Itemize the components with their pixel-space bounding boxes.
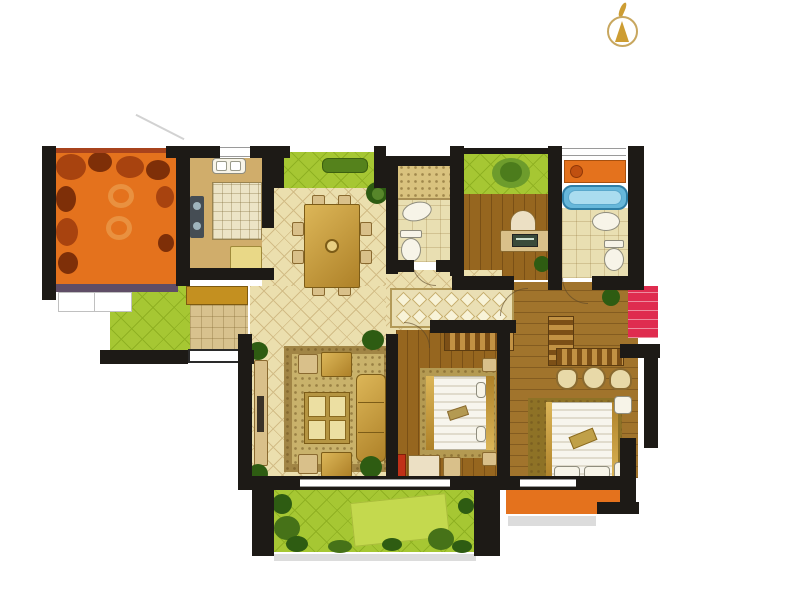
dining-chair — [292, 250, 304, 264]
terrace-railing-top — [56, 148, 168, 153]
wall-segment — [386, 334, 398, 478]
coffee-table-tray — [329, 396, 346, 417]
coffee-table-tray — [308, 420, 326, 440]
wall-segment — [597, 502, 639, 514]
ac-platform — [58, 292, 132, 312]
study-garden-bush — [500, 162, 522, 182]
terrace-railing-bottom — [56, 284, 178, 292]
terrace-foliage — [156, 186, 174, 208]
dining-plant — [372, 188, 384, 200]
terrace-foliage — [56, 218, 78, 246]
master-wardrobe — [556, 348, 624, 366]
side-table — [298, 354, 318, 374]
master-pouf — [556, 368, 578, 390]
sofa-seat-line — [358, 402, 384, 403]
dining-chair — [292, 222, 304, 236]
balcony-foliage — [286, 536, 308, 552]
wall-segment — [450, 146, 464, 276]
ensuite-sink — [592, 212, 620, 231]
armchair — [321, 452, 352, 477]
balcony-foliage — [328, 540, 352, 553]
wall-segment — [240, 350, 254, 364]
terrace-chair — [108, 184, 134, 208]
compass-flame-icon — [617, 2, 628, 18]
runner-diamond — [444, 292, 460, 308]
wall-segment — [250, 146, 290, 158]
wall-segment — [458, 148, 554, 154]
floor-plan-canvas — [0, 0, 800, 611]
window — [520, 479, 576, 487]
shoe-cabinet — [186, 286, 248, 305]
balcony-foliage — [428, 528, 454, 550]
sketch-line — [135, 114, 184, 140]
ac-platform-line — [94, 292, 95, 312]
dining-chair — [360, 250, 372, 264]
terrace-foliage — [56, 186, 76, 212]
wall-segment — [42, 146, 56, 300]
red-bay-window — [628, 286, 658, 338]
bedroom-bed-footboard — [426, 376, 434, 450]
terrace-foliage — [58, 252, 78, 274]
terrace-foliage — [158, 234, 174, 252]
terrace-foliage — [88, 152, 112, 172]
runner-diamond — [476, 292, 492, 308]
window — [300, 479, 450, 487]
nightstand — [482, 452, 497, 466]
bedroom-headboard — [486, 376, 494, 450]
wall-segment — [644, 344, 658, 448]
shower-area — [398, 164, 450, 200]
runner-diamond — [412, 292, 428, 308]
dining-chair — [360, 222, 372, 236]
master-bed-frame — [546, 402, 552, 482]
master-nightstand — [614, 396, 632, 414]
coffee-table-tray — [308, 396, 326, 417]
garden-bench — [322, 158, 368, 173]
wall-segment — [252, 486, 274, 556]
entry-threshold — [188, 349, 240, 363]
wall-segment — [474, 486, 500, 556]
bedroom-pillow — [476, 382, 486, 398]
wall-segment — [100, 350, 176, 364]
toilet-tank — [400, 230, 422, 238]
dining-table-center — [325, 239, 339, 253]
terrace-foliage — [56, 154, 86, 180]
wall-segment — [592, 276, 644, 290]
wall-segment — [620, 344, 660, 358]
wall-segment — [436, 260, 450, 272]
wall-segment — [176, 146, 190, 286]
balcony-foliage — [272, 494, 292, 514]
wall-segment — [386, 156, 398, 274]
wall-segment — [386, 260, 414, 272]
ensuite-cabinet-bowl — [570, 165, 583, 178]
wall-segment — [398, 156, 450, 166]
runner-diamond — [428, 292, 444, 308]
kitchen-sink-basin — [216, 161, 227, 171]
bathtub-inner — [568, 190, 622, 205]
wall-segment — [176, 350, 188, 364]
balcony-foliage — [452, 540, 472, 553]
runner-diamond — [460, 292, 476, 308]
runner-diamond — [396, 292, 412, 308]
cooktop-burner — [193, 222, 201, 230]
bay-shadow — [508, 516, 596, 526]
balcony-foliage — [382, 538, 402, 551]
wall-segment — [452, 276, 514, 290]
master-pouf — [582, 366, 606, 390]
wall-segment — [628, 146, 644, 288]
north-arrow-icon — [615, 21, 629, 42]
window — [220, 147, 250, 157]
runner-diamond — [412, 309, 428, 325]
master-plant — [602, 288, 620, 306]
cooktop-burner — [193, 202, 201, 210]
wall-segment — [497, 332, 510, 478]
terrace-foliage — [146, 160, 170, 180]
terrace-foliage — [116, 156, 144, 178]
living-plant — [362, 330, 384, 350]
balcony-foliage — [458, 498, 474, 514]
ensuite-toilet-bowl — [604, 248, 624, 271]
toilet-bowl — [401, 238, 421, 262]
bedroom-dresser — [408, 455, 440, 478]
coffee-table-tray — [329, 420, 346, 440]
balcony-shadow — [274, 554, 476, 561]
bedroom-unit — [443, 457, 461, 477]
bedroom-pillow — [476, 426, 486, 442]
side-table — [298, 454, 318, 474]
terrace-chair — [106, 216, 132, 240]
wall-segment — [186, 268, 274, 280]
ensuite-toilet-tank — [604, 240, 624, 248]
living-plant — [360, 456, 382, 478]
window — [562, 148, 626, 156]
master-pouf — [609, 368, 632, 390]
wall-segment — [374, 146, 386, 188]
wall-segment — [190, 146, 220, 158]
armchair — [321, 352, 352, 377]
sofa — [356, 374, 386, 462]
computer-monitor — [512, 234, 538, 247]
wall-segment — [272, 146, 284, 188]
tv — [257, 396, 264, 432]
kitchen-island — [212, 182, 262, 240]
nightstand — [482, 358, 497, 372]
wall-segment — [548, 146, 562, 290]
sofa-seat-line — [358, 432, 384, 433]
study-chair — [510, 210, 536, 232]
computer-screen-line — [516, 238, 534, 240]
kitchen-sink-basin — [230, 161, 241, 171]
